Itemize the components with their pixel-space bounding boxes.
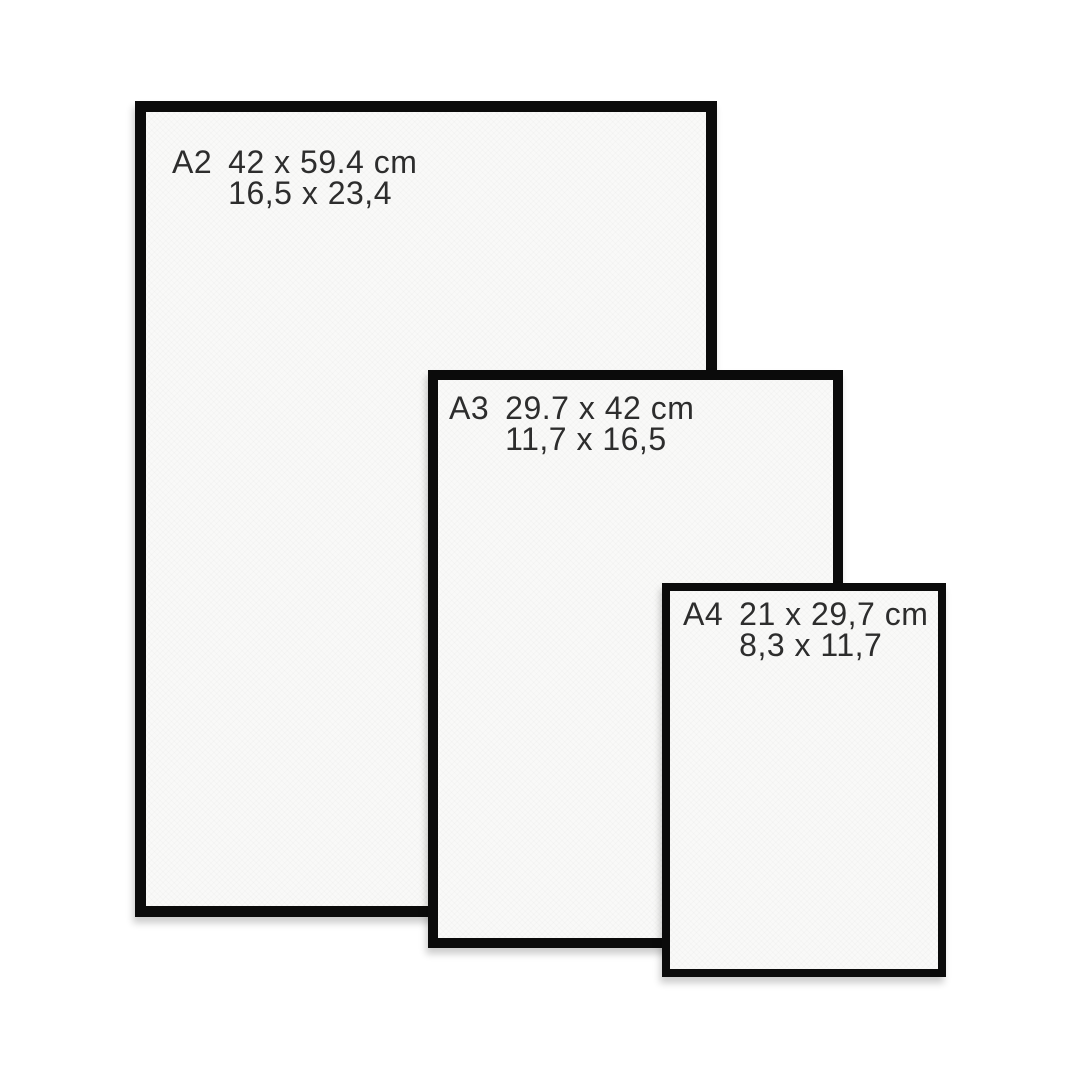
size-inches-a4: 8,3 x 11,7 <box>739 630 928 661</box>
size-cm-a4: 21 x 29,7 cm <box>739 599 928 630</box>
size-dims-a3: 29.7 x 42 cm 11,7 x 16,5 <box>505 393 694 455</box>
frame-a4: A4 21 x 29,7 cm 8,3 x 11,7 <box>662 583 946 977</box>
size-dims-a2: 42 x 59.4 cm 16,5 x 23,4 <box>228 147 417 209</box>
size-name-a3: A3 <box>449 393 489 424</box>
size-comparison-diagram: A2 42 x 59.4 cm 16,5 x 23,4 A3 29.7 x 42… <box>0 0 1080 1080</box>
size-name-a2: A2 <box>172 147 212 178</box>
size-label-a2: A2 42 x 59.4 cm 16,5 x 23,4 <box>172 147 417 209</box>
size-cm-a3: 29.7 x 42 cm <box>505 393 694 424</box>
size-cm-a2: 42 x 59.4 cm <box>228 147 417 178</box>
size-dims-a4: 21 x 29,7 cm 8,3 x 11,7 <box>739 599 928 661</box>
size-inches-a2: 16,5 x 23,4 <box>228 178 417 209</box>
size-label-a4: A4 21 x 29,7 cm 8,3 x 11,7 <box>683 599 928 661</box>
size-name-a4: A4 <box>683 599 723 630</box>
size-inches-a3: 11,7 x 16,5 <box>505 424 694 455</box>
size-label-a3: A3 29.7 x 42 cm 11,7 x 16,5 <box>449 393 694 455</box>
